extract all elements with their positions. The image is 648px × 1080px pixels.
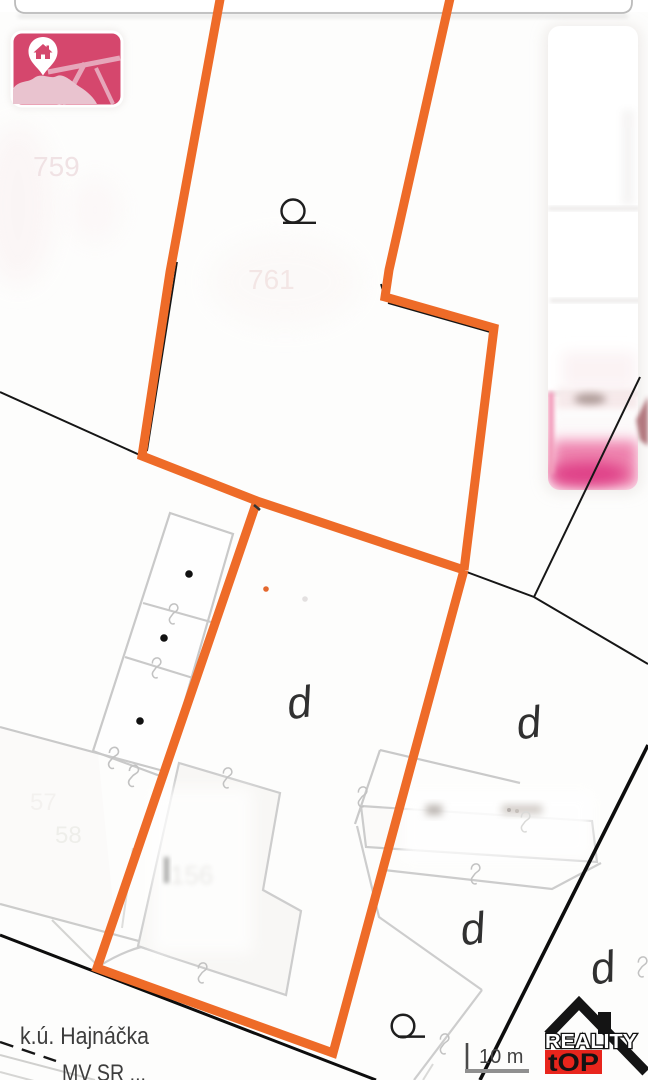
svg-text:156: 156 xyxy=(170,860,213,890)
svg-text:k.ú. Hajnáčka: k.ú. Hajnáčka xyxy=(20,1023,150,1050)
svg-text:MV SR ...: MV SR ... xyxy=(62,1060,146,1080)
svg-text:10 m: 10 m xyxy=(479,1046,523,1068)
svg-text:57: 57 xyxy=(30,789,57,816)
svg-text:761: 761 xyxy=(248,264,295,295)
svg-text:tOP: tOP xyxy=(548,1049,599,1077)
svg-text:759: 759 xyxy=(33,151,80,182)
svg-text:58: 58 xyxy=(55,822,82,849)
